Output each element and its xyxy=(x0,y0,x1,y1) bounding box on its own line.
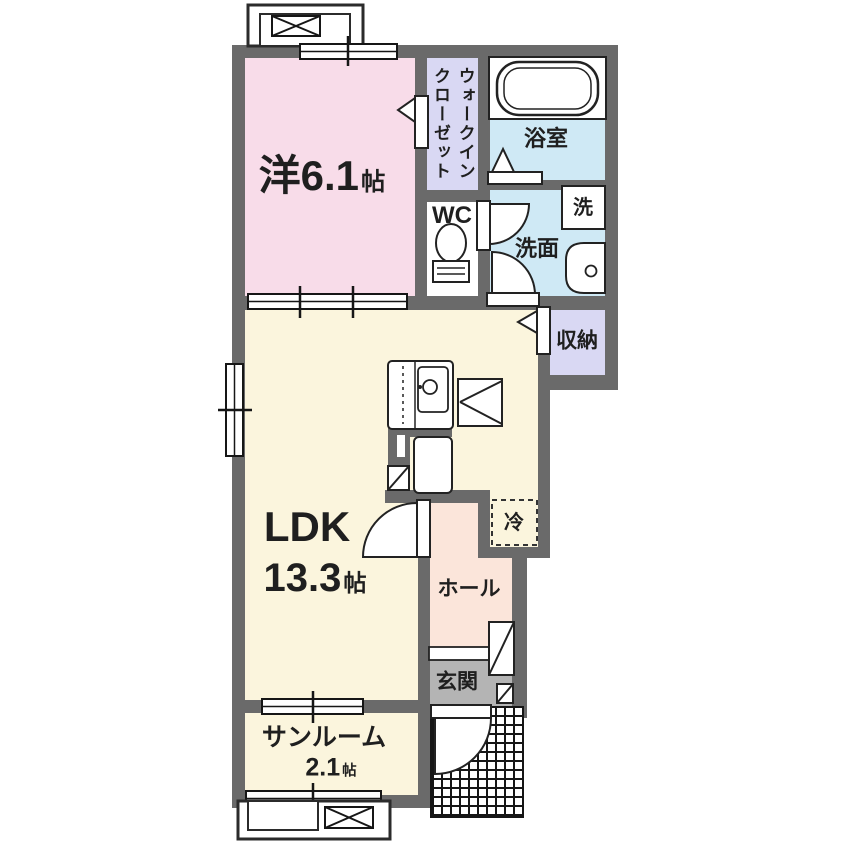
label-ldk-size: 13.3帖 xyxy=(263,558,366,598)
bottom-terrace xyxy=(238,801,390,839)
entrance-small-box xyxy=(497,684,513,703)
label-sunroom: サンルーム xyxy=(262,726,386,751)
entrance-door xyxy=(431,705,491,774)
kitchen-corner-box xyxy=(388,466,409,490)
kitchen-wall-gap xyxy=(397,435,405,457)
walkin-closet-door xyxy=(398,96,428,148)
kitchen-faucet xyxy=(423,380,437,394)
label-storage: 収納 xyxy=(556,331,598,352)
floorplan: 洋6.1帖 ウォークイン クローゼット 浴室 洗 洗面 WC 収納 LDK 13… xyxy=(0,0,846,846)
kitchen-counter xyxy=(388,361,453,429)
bathtub xyxy=(489,57,606,119)
range-hood-symbol xyxy=(458,379,502,426)
label-washroom: 洗面 xyxy=(515,238,559,260)
shoe-cabinet xyxy=(489,622,514,675)
label-wc: WC xyxy=(432,204,472,228)
toilet xyxy=(433,224,469,282)
storage-door xyxy=(518,307,550,354)
window-ldk-left xyxy=(218,364,252,456)
window-ldk-sunroom xyxy=(262,691,363,723)
kitchen-lower-unit xyxy=(414,437,452,493)
label-washing-machine: 洗 xyxy=(573,198,593,218)
ldk-hall-door xyxy=(363,500,430,557)
top-terrace xyxy=(248,5,363,46)
bath-door xyxy=(488,149,542,184)
label-ldk: LDK xyxy=(264,506,350,548)
washbasin xyxy=(566,243,605,293)
label-entrance: 玄関 xyxy=(436,672,478,693)
sliding-door-western-ldk xyxy=(248,286,407,318)
label-walkin-closet: ウォークイン クローゼット xyxy=(427,67,476,181)
label-sunroom-size: 2.1帖 xyxy=(305,756,356,781)
label-western-room: 洋6.1帖 xyxy=(259,155,386,197)
fixtures-layer xyxy=(0,0,846,846)
label-hall: ホール xyxy=(438,579,501,600)
entrance-step xyxy=(429,647,492,660)
label-refrigerator: 冷 xyxy=(504,513,524,533)
label-bathroom: 浴室 xyxy=(524,128,568,150)
